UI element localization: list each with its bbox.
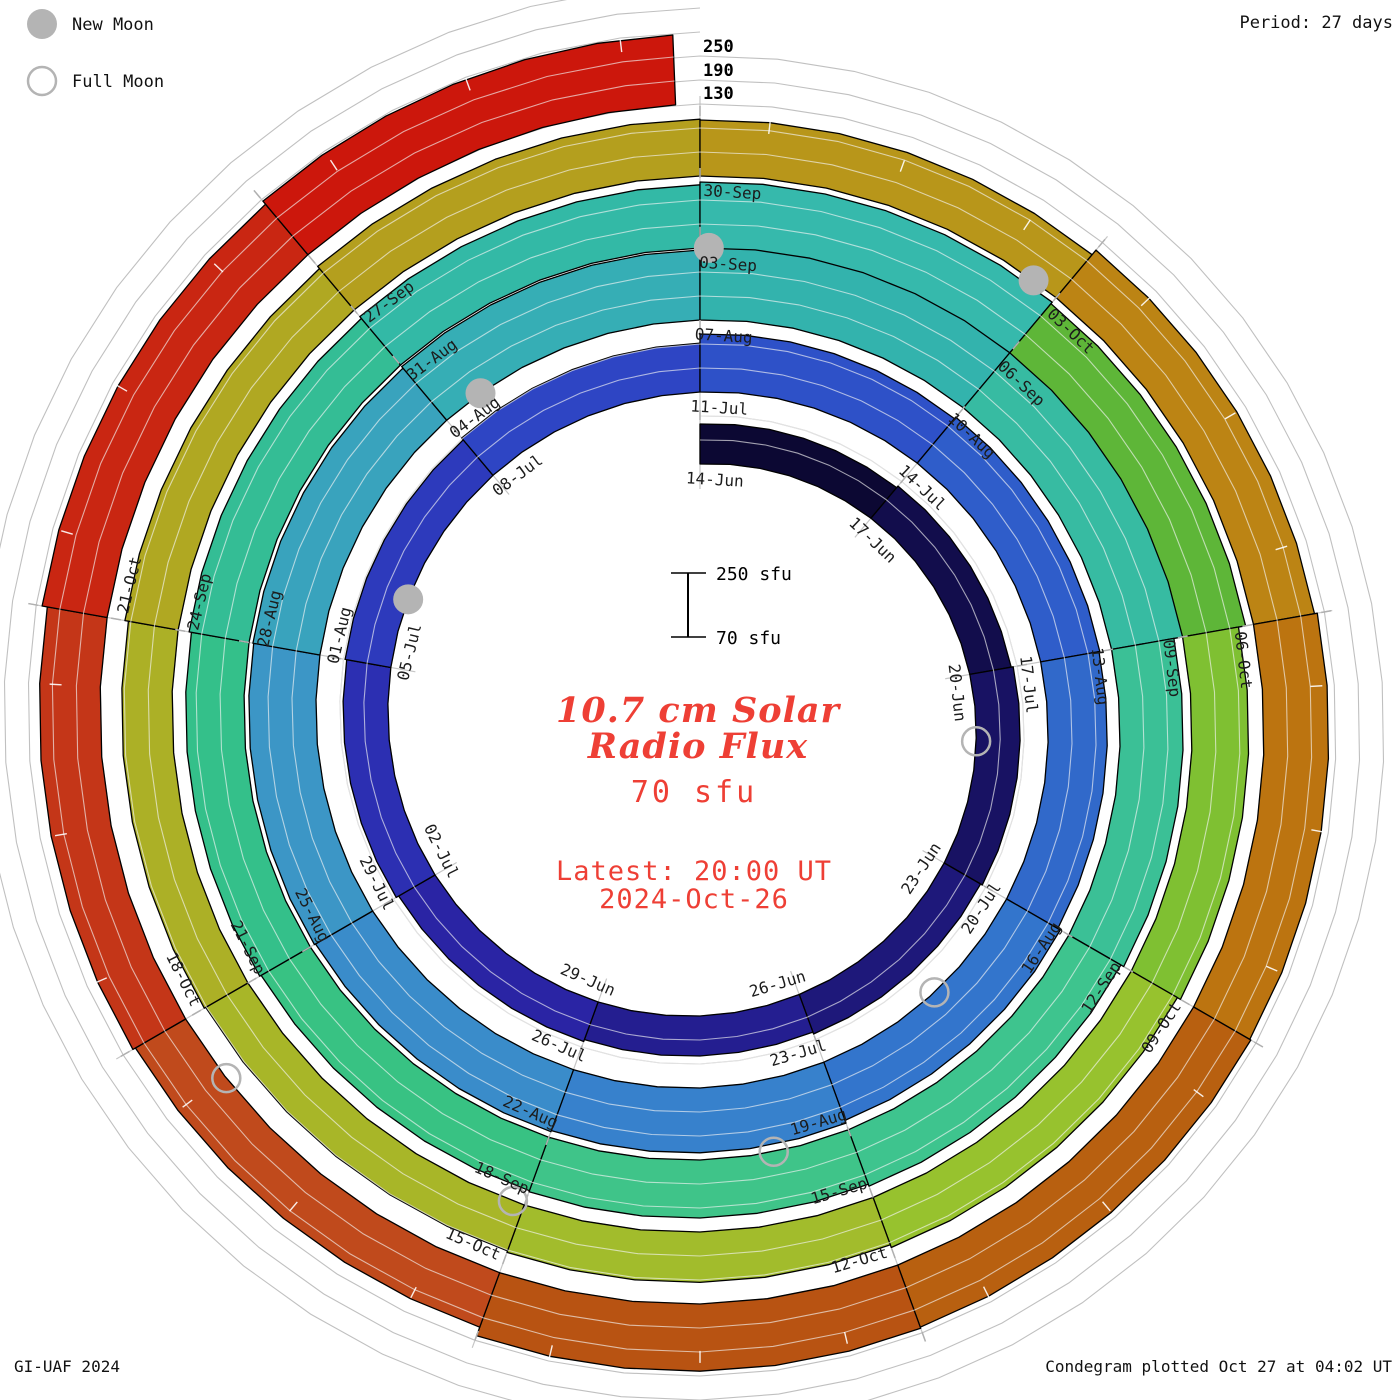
date-label-20-Jun: 20-Jun (945, 663, 970, 723)
condegram-chart: 14-Jun17-Jun20-Jun23-Jun26-Jun29-Jun02-J… (0, 0, 1400, 1400)
date-label-07-Aug: 07-Aug (694, 324, 753, 346)
daily-flux-tick (1310, 686, 1322, 687)
segment-tick (870, 1188, 873, 1197)
latest-date-label: 2024-Oct-26 (599, 884, 789, 915)
scalebar-top-label: 250 sfu (716, 564, 792, 585)
chart-title-line2: Radio Flux (587, 726, 808, 767)
segment-tick (1321, 611, 1331, 613)
segment-tick (892, 1249, 895, 1258)
full-moon-icon (28, 67, 56, 95)
chart-title-line1: 10.7 cm Solar (556, 690, 842, 731)
latest-time-label: Latest: 20:00 UT (556, 856, 832, 887)
radial-scale-190: 190 (703, 61, 734, 81)
period-label: Period: 27 days (1239, 13, 1393, 33)
flux-segment-26-Jun (584, 995, 813, 1057)
segment-tick (192, 1010, 201, 1015)
segment-tick (922, 1332, 925, 1341)
segment-tick (503, 1255, 506, 1264)
date-label-14-Jun: 14-Jun (685, 468, 744, 490)
date-label-11-Jul: 11-Jul (690, 396, 749, 418)
full-moon-label: Full Moon (72, 72, 164, 92)
baseline-value-label: 70 sfu (631, 775, 757, 810)
new-moon-label: New Moon (72, 15, 154, 35)
condegram-page: 14-Jun17-Jun20-Jun23-Jun26-Jun29-Jun02-J… (0, 0, 1400, 1400)
segment-tick (309, 256, 315, 264)
date-label-17-Jul: 17-Jul (1016, 655, 1041, 715)
scalebar-bottom-label: 70 sfu (716, 628, 781, 649)
segment-tick (111, 618, 121, 620)
segment-tick (254, 190, 260, 198)
new-moon-marker (393, 584, 423, 614)
footer-note: Condegram plotted Oct 27 at 04:02 UT (1045, 1357, 1392, 1376)
flux-segment-23-Jul (551, 1062, 846, 1153)
credit-label: GI-UAF 2024 (14, 1357, 120, 1376)
date-label-03-Sep: 03-Sep (699, 253, 758, 275)
radial-scale-130: 130 (703, 84, 734, 104)
date-label-30-Sep: 30-Sep (703, 181, 762, 203)
radial-scale-250: 250 (703, 37, 734, 57)
radial-scale: 250 190 130 (703, 37, 734, 104)
new-moon-icon (27, 9, 57, 39)
moon-legend: New Moon Full Moon (27, 9, 164, 95)
segment-tick (248, 978, 257, 983)
new-moon-marker (1019, 265, 1049, 295)
daily-flux-tick (50, 684, 62, 685)
segment-tick (1181, 1000, 1190, 1005)
flux-scalebar (671, 573, 706, 637)
